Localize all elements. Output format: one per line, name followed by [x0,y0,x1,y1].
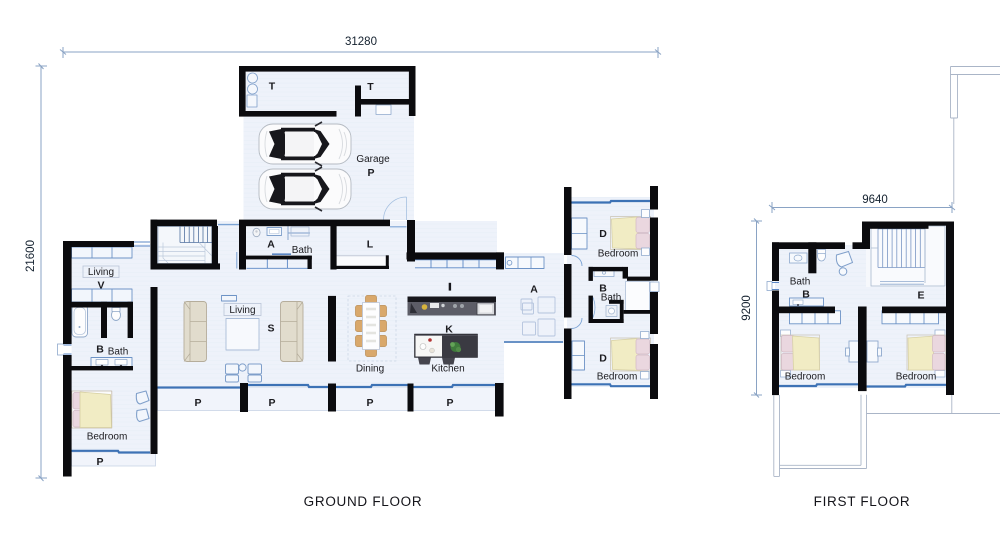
svg-text:B: B [802,289,810,301]
svg-text:Bedroom: Bedroom [597,372,638,383]
svg-text:Bath: Bath [601,293,622,304]
svg-text:Bedroom: Bedroom [785,372,826,383]
svg-text:D: D [599,228,607,240]
svg-text:31280: 31280 [345,36,377,48]
svg-text:K: K [445,324,453,336]
svg-text:B: B [96,344,104,356]
svg-text:9640: 9640 [862,194,888,206]
svg-text:FIRST FLOOR: FIRST FLOOR [814,494,911,509]
svg-text:Bath: Bath [790,277,811,288]
svg-text:P: P [367,167,374,179]
svg-text:P: P [96,456,103,468]
svg-text:Kitchen: Kitchen [431,364,464,375]
svg-text:A: A [267,239,275,251]
svg-text:Bath: Bath [108,347,129,358]
svg-text:D: D [599,353,607,365]
svg-text:P: P [268,397,275,409]
svg-text:P: P [366,397,373,409]
svg-text:T: T [367,81,374,93]
svg-text:9200: 9200 [741,295,753,321]
svg-text:21600: 21600 [25,240,37,272]
svg-text:Living: Living [229,305,255,316]
svg-text:Garage: Garage [356,154,390,165]
svg-text:Bath: Bath [292,245,313,256]
svg-text:Bedroom: Bedroom [598,249,639,260]
svg-text:Bedroom: Bedroom [87,432,128,443]
svg-text:V: V [97,280,104,292]
svg-text:T: T [269,81,276,93]
svg-text:A: A [530,284,538,296]
svg-text:S: S [267,323,274,335]
svg-text:GROUND FLOOR: GROUND FLOOR [304,494,423,509]
svg-text:Living: Living [88,267,114,278]
svg-text:Dining: Dining [356,364,384,375]
svg-text:L: L [367,239,374,251]
svg-text:Bedroom: Bedroom [896,372,937,383]
svg-text:P: P [194,397,201,409]
svg-text:P: P [446,397,453,409]
svg-text:E: E [917,290,924,302]
